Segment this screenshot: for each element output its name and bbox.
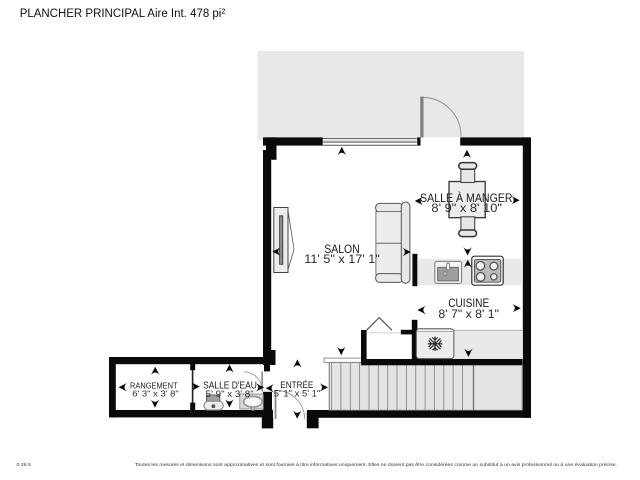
svg-text:11' 5" x 17' 1": 11' 5" x 17' 1" (304, 252, 380, 266)
svg-text:0.26.5: 0.26.5 (17, 462, 32, 467)
svg-text:5' 1" x 5' 1": 5' 1" x 5' 1" (274, 388, 321, 398)
svg-text:6' 3" x 3' 8": 6' 3" x 3' 8" (132, 388, 179, 398)
svg-text:PLANCHER PRINCIPAL Aire Int. 4: PLANCHER PRINCIPAL Aire Int. 478 pi² (20, 6, 226, 20)
svg-text:Toutes les mesures et dimensio: Toutes les mesures et dimensions sont ap… (135, 462, 617, 467)
svg-text:5' 9" x 3' 8": 5' 9" x 3' 8" (206, 389, 254, 400)
svg-text:8' 9" x 8' 10": 8' 9" x 8' 10" (431, 201, 502, 215)
svg-text:8' 7" x 8' 1": 8' 7" x 8' 1" (438, 307, 499, 321)
